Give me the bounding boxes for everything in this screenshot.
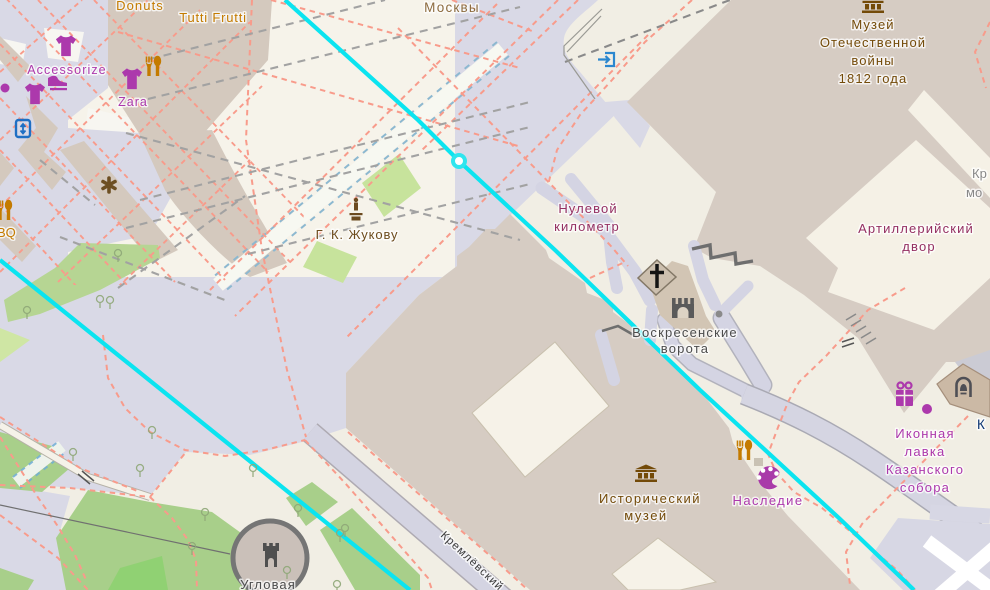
svg-text:Г. К. Жукову: Г. К. Жукову — [316, 227, 399, 242]
svg-text:1812 года: 1812 года — [839, 71, 908, 86]
svg-text:К: К — [977, 417, 985, 432]
svg-text:Угловая: Угловая — [240, 577, 296, 590]
svg-text:Отечественной: Отечественной — [820, 35, 926, 50]
svg-text:Исторический: Исторический — [599, 491, 701, 506]
svg-text:войны: войны — [851, 53, 894, 68]
svg-text:Наследие: Наследие — [733, 493, 804, 508]
svg-text:километр: километр — [554, 219, 620, 234]
svg-text:Москвы: Москвы — [424, 0, 480, 15]
svg-text:Tutti Frutti: Tutti Frutti — [179, 10, 247, 25]
svg-text:Казанского: Казанского — [886, 462, 964, 477]
svg-text:мо: мо — [966, 185, 982, 200]
svg-text:BQ: BQ — [0, 225, 16, 240]
svg-text:Музей: Музей — [851, 17, 894, 32]
svg-text:Кр: Кр — [972, 166, 987, 181]
svg-text:двор: двор — [902, 239, 935, 254]
svg-text:Zara: Zara — [118, 95, 148, 109]
svg-text:Воскресенские: Воскресенские — [632, 325, 738, 340]
svg-text:ворота: ворота — [661, 341, 709, 356]
svg-text:Нулевой: Нулевой — [558, 201, 617, 216]
svg-text:собора: собора — [900, 480, 950, 495]
svg-text:музей: музей — [624, 508, 667, 523]
svg-text:Артиллерийский: Артиллерийский — [858, 221, 974, 236]
svg-text:Accessorize: Accessorize — [27, 63, 106, 77]
svg-text:Donuts: Donuts — [116, 0, 164, 13]
svg-text:Иконная: Иконная — [895, 426, 954, 441]
svg-text:лавка: лавка — [905, 444, 946, 459]
